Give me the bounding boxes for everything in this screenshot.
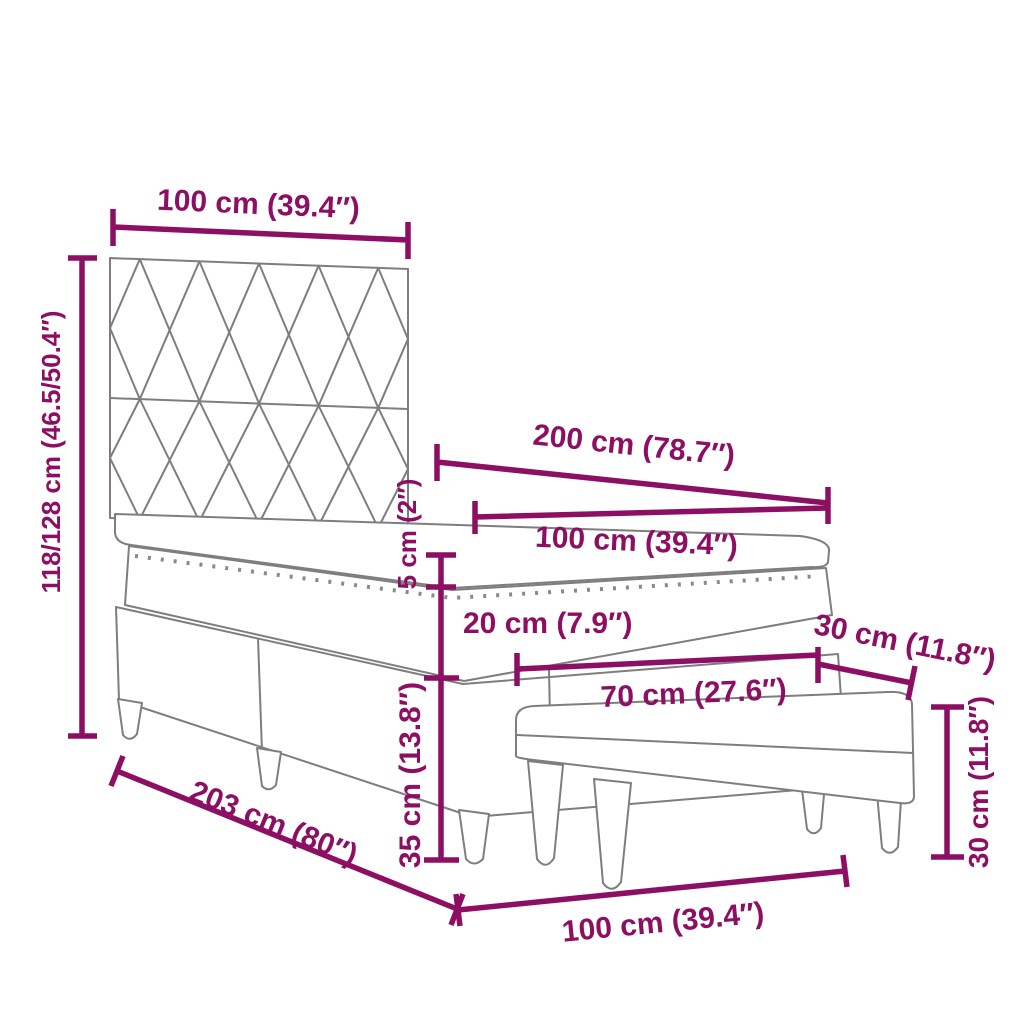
dim-base-height-label: 35 cm (13.8″) [394,682,427,868]
dim-bed-length-top-label: 200 cm (78.7″) [531,419,736,473]
dim-headboard-width: 100 cm (39.4″) [113,184,408,259]
dimension-diagram: 100 cm (39.4″) 118/128 cm (46.5/50.4″) 2… [0,0,1024,1024]
bed-leg-1 [118,699,142,739]
dim-topper-height-label: 5 cm (2″) [392,479,422,590]
headboard [110,258,408,529]
dim-bench-height: 30 cm (11.8″) [931,696,994,868]
dim-bed-height: 118/128 cm (46.5/50.4″) [36,258,97,736]
dim-bench-height-label: 30 cm (11.8″) [963,696,994,868]
dim-bed-total-length-label: 203 cm (80″) [185,775,362,872]
dim-bed-height-label: 118/128 cm (46.5/50.4″) [36,311,66,594]
bed-leg-3 [459,810,489,864]
dim-bed-width-bottom: 100 cm (39.4″) [456,855,847,949]
dim-bed-width-bottom-label: 100 cm (39.4″) [561,896,766,948]
dim-headboard-width-label: 100 cm (39.4″) [156,184,360,226]
dim-mattress-height-label: 20 cm (7.9″) [463,607,632,640]
bed-leg-2 [257,748,281,789]
bench-leg-front-left [528,761,563,865]
bench-leg-front-mid [594,779,631,889]
